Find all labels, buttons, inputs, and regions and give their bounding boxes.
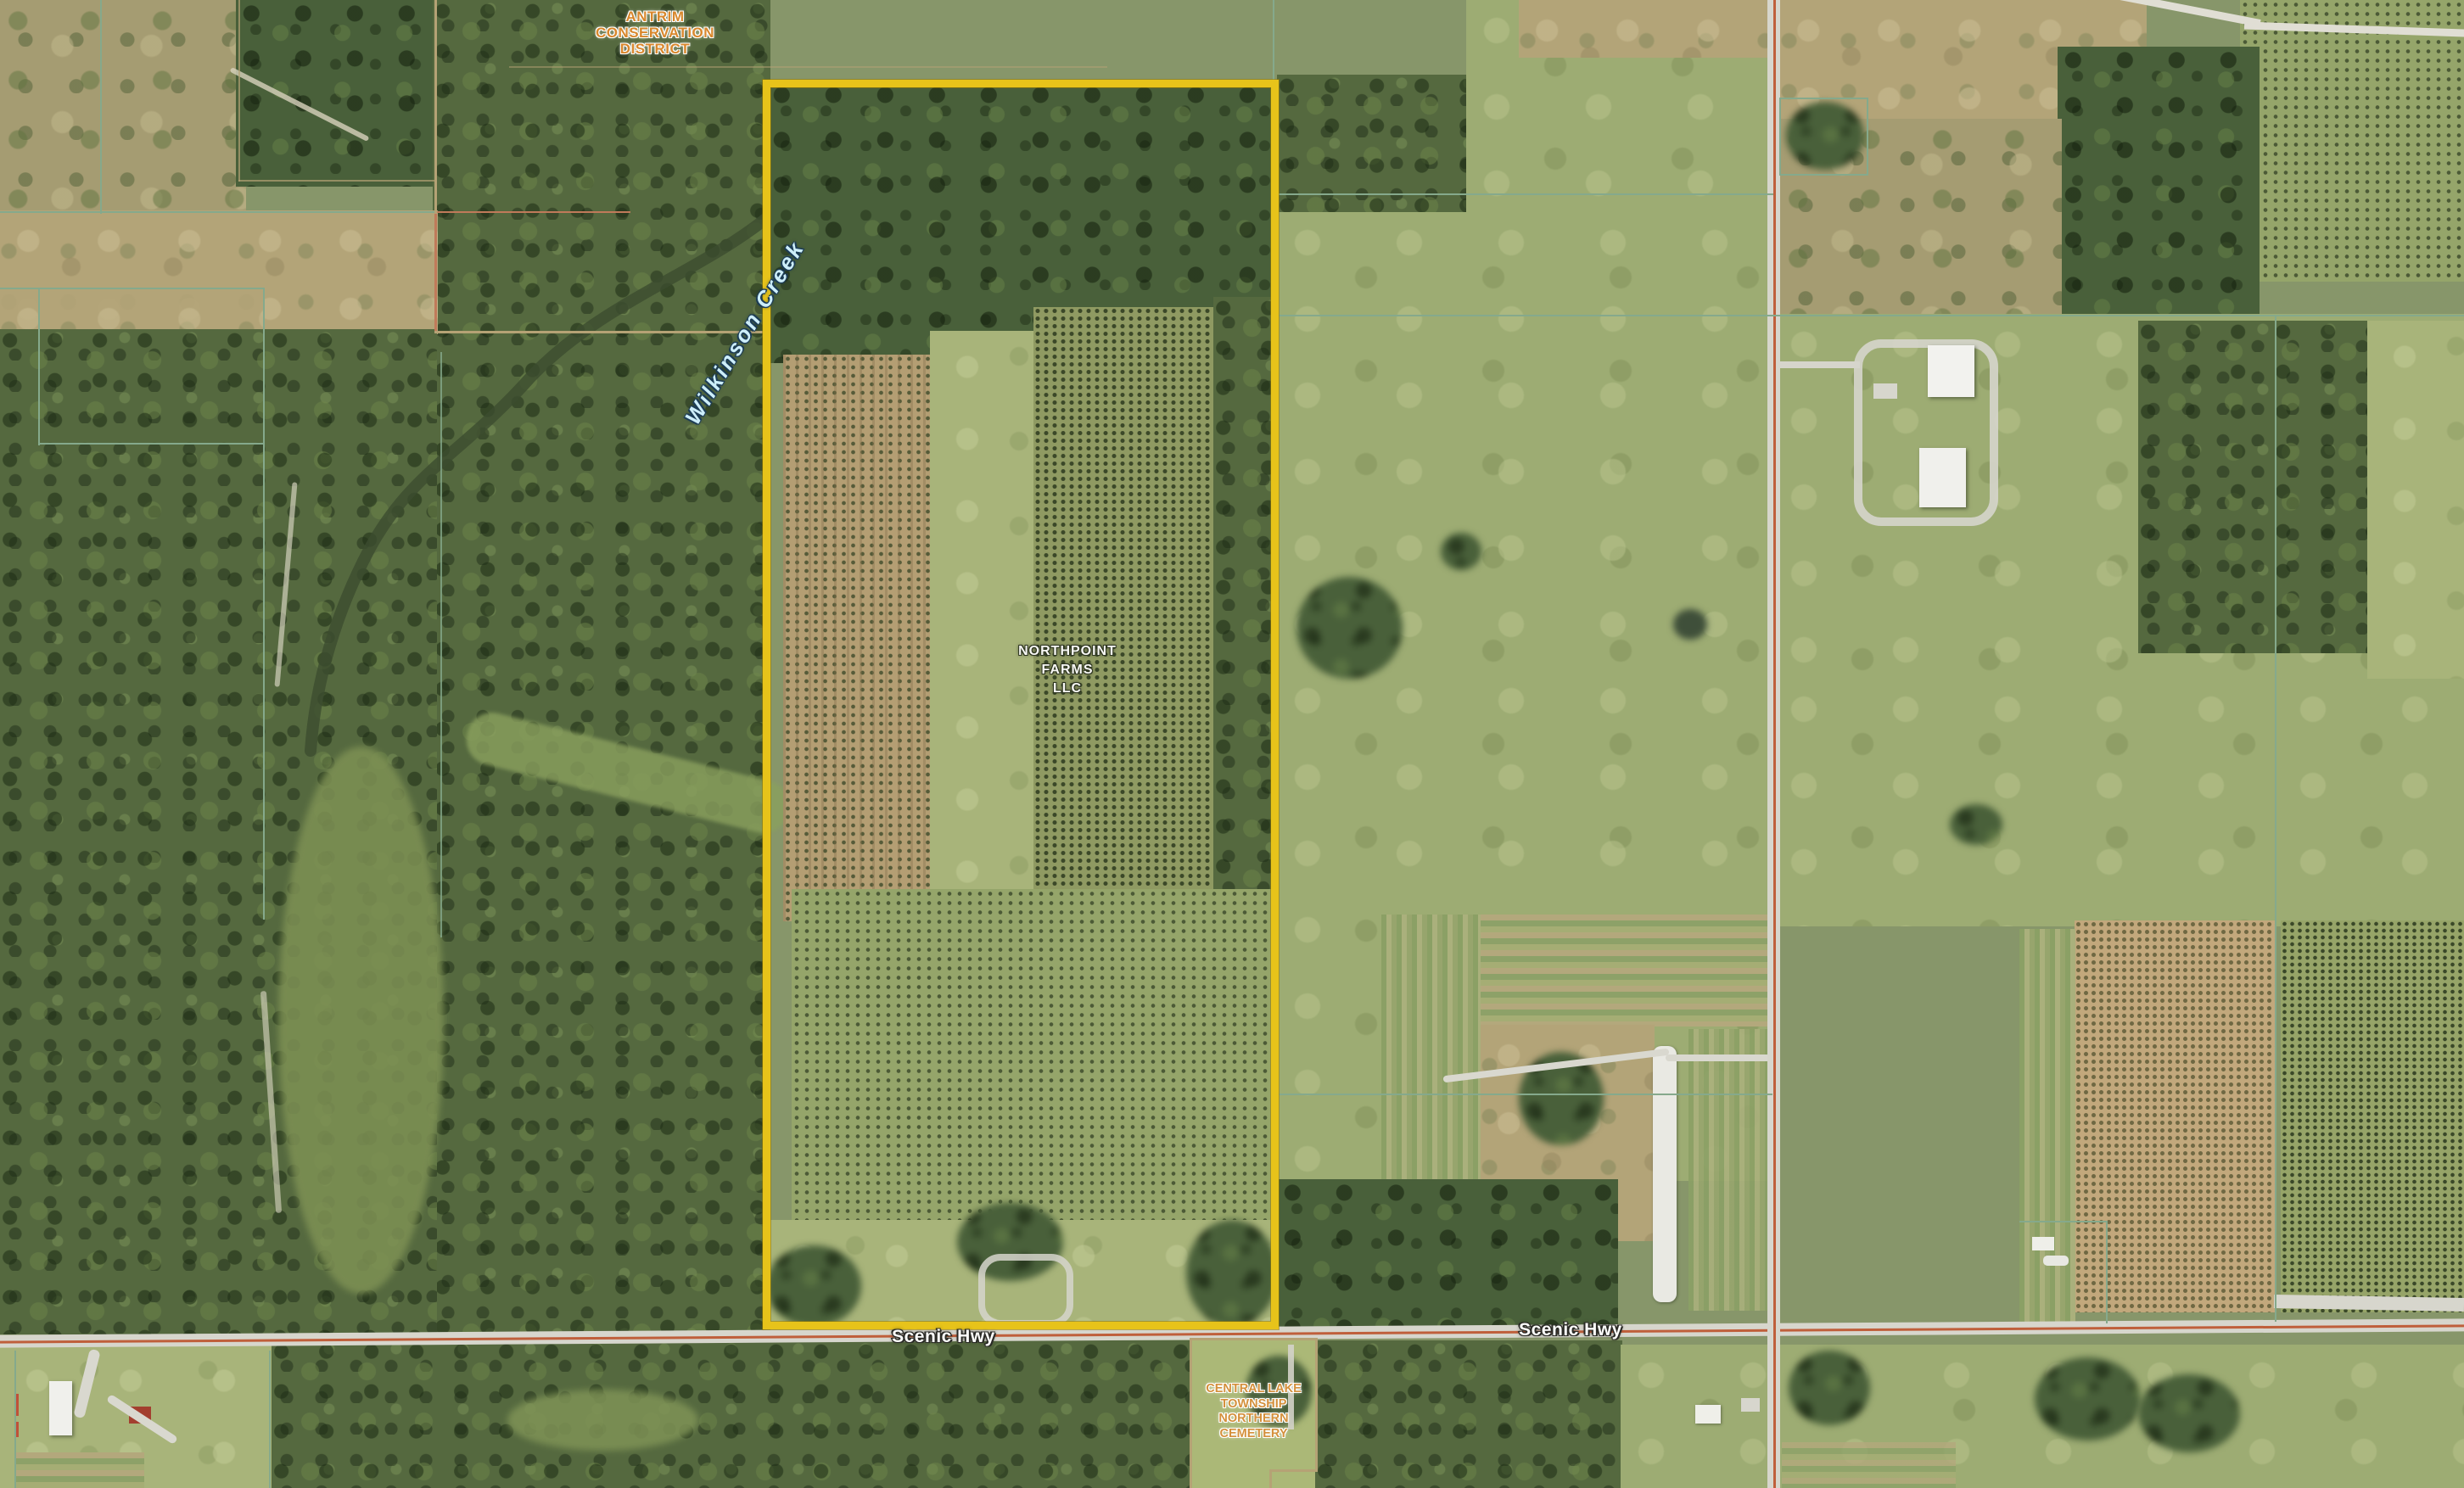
forest-below-road <box>272 1340 1193 1488</box>
scenic-hwy-label-west: Scenic Hwy <box>859 1327 1028 1347</box>
cemetery-parcel-line <box>1190 1338 1318 1340</box>
trees-bottom-right-3 <box>2138 1374 2240 1452</box>
house-bottom-left <box>49 1381 72 1435</box>
parcel-line <box>100 0 102 214</box>
label-line: CEMETERY <box>1184 1427 1324 1442</box>
forest-mid-right <box>2138 321 2369 653</box>
label-line: NORTHPOINT <box>983 642 1152 661</box>
cemetery-label: CENTRAL LAKE TOWNSHIP NORTHERN CEMETERY <box>1184 1382 1324 1441</box>
parcel-line <box>2019 1221 2108 1222</box>
parcel-line <box>434 331 770 333</box>
aerial-map[interactable]: ANTRIM CONSERVATION DISTRICT Wilkinson C… <box>0 0 2464 1488</box>
parcel-line <box>16 1394 19 1416</box>
barn-north <box>1928 345 1974 397</box>
shed-bottom-center-right <box>1741 1398 1760 1412</box>
shed-small-parcel <box>2032 1237 2054 1250</box>
camper-small-parcel <box>2043 1256 2069 1266</box>
parcel-line <box>1273 0 1274 81</box>
trees-bottom-right-2 <box>2035 1357 2141 1440</box>
parcel-line <box>1277 193 1773 195</box>
cemetery-parcel-line <box>1269 1469 1272 1488</box>
tree-clump-meadow-1 <box>1296 577 1403 679</box>
tree-clump-mid-right <box>1950 804 2002 845</box>
label-line: CENTRAL LAKE <box>1184 1382 1324 1397</box>
forest-top-right <box>2058 47 2260 320</box>
striped-field-bottom-right <box>1782 1442 1956 1488</box>
parcel-line <box>38 443 265 445</box>
parcel-line <box>509 66 1107 68</box>
garden-driveway <box>1666 1054 1773 1061</box>
subject-parcel-boundary[interactable] <box>763 80 1279 1329</box>
antrim-conservation-district-label: ANTRIM CONSERVATION DISTRICT <box>553 8 757 57</box>
parcel-line <box>0 211 438 213</box>
parcel-line <box>1279 1094 1772 1095</box>
house-parcel-boundary <box>1779 98 1868 176</box>
label-line: DISTRICT <box>553 41 757 57</box>
parcel-line <box>238 180 437 182</box>
hoophouse <box>1653 1046 1677 1302</box>
trees-bottom-right-1 <box>1789 1351 1870 1425</box>
garden-rows-north <box>1481 915 1771 1026</box>
label-line: LLC <box>983 680 1152 698</box>
cemetery-parcel-line <box>1269 1469 1318 1472</box>
clearing-below-road <box>507 1390 698 1451</box>
scenic-hwy-label-east: Scenic Hwy <box>1486 1320 1655 1340</box>
label-line: NORTHERN <box>1184 1412 1324 1427</box>
parcel-line <box>263 288 265 920</box>
label-line: FARMS <box>983 661 1152 680</box>
orchard-top-right <box>2240 0 2464 282</box>
fields-mid-right <box>1773 679 2464 926</box>
house-bottom-center-right <box>1695 1405 1721 1424</box>
parcel-line <box>2275 316 2276 1322</box>
northpoint-farms-label: NORTHPOINT FARMS LLC <box>983 642 1152 698</box>
label-line: CONSERVATION <box>553 25 757 41</box>
parcel-line <box>434 214 437 333</box>
north-south-road-parcel-line <box>1773 0 1776 1488</box>
north-south-road <box>1767 0 1782 1488</box>
label-line: ANTRIM <box>553 8 757 25</box>
parcel-line <box>238 0 240 182</box>
striped-field-bottom-left <box>15 1452 144 1488</box>
barn-south <box>1919 448 1966 507</box>
forest-right-of-cemetery <box>1315 1340 1622 1488</box>
orchard-bottom-right-tan <box>2075 920 2276 1312</box>
parcel-line <box>435 211 630 213</box>
garden-rows-east <box>1688 1029 1770 1311</box>
tree-clump-meadow-2 <box>1441 533 1481 570</box>
farm-shed <box>1873 383 1897 399</box>
orchard-bottom-right-green <box>2281 920 2464 1312</box>
farm-driveway-from-road <box>1778 361 1860 368</box>
parcel-line <box>440 352 442 937</box>
field-far-right <box>2367 321 2464 680</box>
parcel-line <box>1277 315 2464 316</box>
parcel-line <box>269 1351 271 1488</box>
label-line: TOWNSHIP <box>1184 1397 1324 1412</box>
tan-strip-northeast <box>1519 0 1773 58</box>
parcel-line <box>16 1422 19 1437</box>
pond-east <box>1673 609 1707 640</box>
parcel-line <box>38 288 40 445</box>
forest-strip-south-of-garden <box>1277 1179 1618 1329</box>
parcel-line <box>14 1351 16 1488</box>
parcel-line <box>2106 1221 2108 1323</box>
